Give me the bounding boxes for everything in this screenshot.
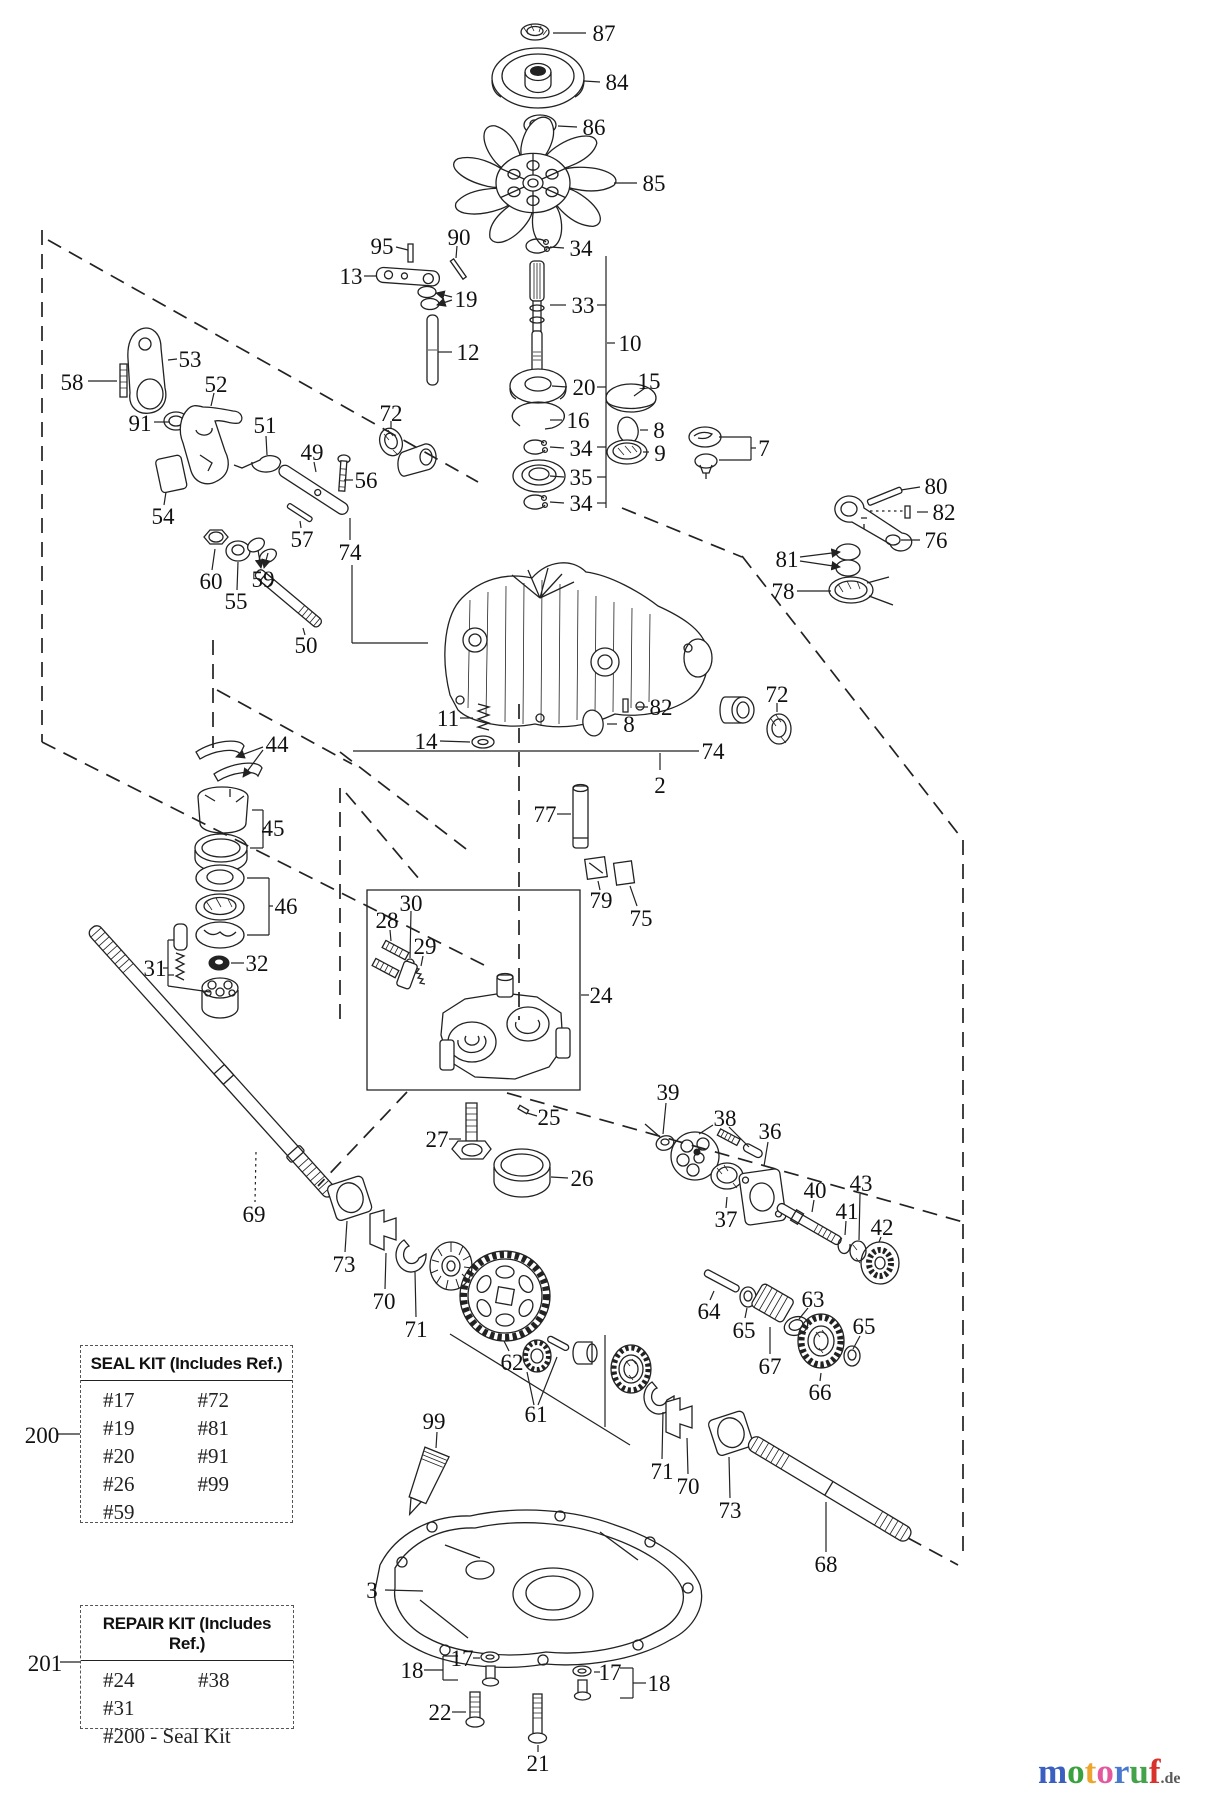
cylinder-block-left	[202, 978, 238, 1018]
callout-90: 90	[448, 225, 471, 250]
callout-81: 81	[776, 547, 799, 572]
callout-84: 84	[606, 70, 630, 95]
callout-49: 49	[301, 440, 324, 465]
callout-18: 18	[648, 1671, 671, 1696]
repair-kit-ref: #31	[103, 1697, 198, 1720]
callout-62: 62	[501, 1350, 524, 1375]
exploded-diagram-canvas: 8784868590951334193310122015168349353478…	[0, 0, 1208, 1800]
callout-73: 73	[719, 1498, 742, 1523]
callout-38: 38	[714, 1106, 737, 1131]
callout-8: 8	[623, 712, 635, 737]
leader-arrow	[800, 561, 840, 567]
leader-line	[662, 1412, 663, 1459]
leader-line	[237, 562, 238, 590]
glue-tube-99-drawing	[399, 1447, 449, 1520]
callout-72: 72	[766, 682, 789, 707]
spring-31	[176, 953, 184, 980]
snap-ring-16	[512, 402, 564, 429]
callout-95: 95	[371, 234, 394, 259]
callout-43: 43	[850, 1171, 873, 1196]
callout-30: 30	[400, 891, 423, 916]
leader-line	[551, 1177, 568, 1178]
bypass-arm-group-drawing	[829, 487, 912, 605]
callout-61: 61	[525, 1402, 548, 1427]
c-washer-71a	[396, 1240, 426, 1272]
clutch-pack-cluster-drawing	[174, 741, 262, 1018]
gear-42	[861, 1242, 899, 1284]
leader-line	[687, 1438, 688, 1474]
repair-kit-ref: #24	[103, 1669, 198, 1692]
leader-line	[550, 502, 564, 503]
leader-line	[410, 911, 411, 958]
callout-82: 82	[933, 500, 956, 525]
callout-31: 31	[144, 956, 167, 981]
callout-10: 10	[619, 331, 642, 356]
seal-kit-ref: #17	[103, 1389, 198, 1412]
callout-70: 70	[677, 1474, 700, 1499]
callout-200: 200	[25, 1423, 60, 1448]
callout-201: 201	[28, 1651, 63, 1676]
callout-78: 78	[772, 579, 795, 604]
boundary-dashed-line	[622, 508, 742, 557]
leader-line	[527, 1113, 537, 1116]
callout-59: 59	[252, 567, 275, 592]
leader-line	[584, 81, 600, 82]
input-shaft-stack-drawing	[510, 239, 566, 509]
callout-73: 73	[333, 1252, 356, 1277]
callout-91: 91	[129, 411, 152, 436]
callout-85: 85	[643, 171, 666, 196]
seal-kit-ref: #20	[103, 1445, 198, 1468]
callout-64: 64	[698, 1299, 722, 1324]
pump-box-drawing	[367, 890, 580, 1114]
callout-76: 76	[925, 528, 948, 553]
callout-87: 87	[593, 21, 616, 46]
leader-line	[901, 487, 920, 490]
exploded-parts-diagram-page: 8784868590951334193310122015168349353478…	[0, 0, 1208, 1800]
callout-77: 77	[534, 802, 557, 827]
right-axle-hardware-drawing	[644, 1382, 914, 1544]
repair-kit-title: REPAIR KIT (Includes Ref.)	[81, 1606, 293, 1661]
logo-letter: t	[1085, 1752, 1097, 1791]
callout-17: 17	[451, 1646, 474, 1671]
control-arm-cluster-drawing	[120, 328, 350, 628]
leader-line	[630, 886, 637, 906]
logo-letter: u	[1129, 1752, 1148, 1791]
callout-65: 65	[733, 1318, 756, 1343]
leader-line	[345, 1221, 347, 1252]
spring-link-51	[234, 456, 281, 472]
callout-37: 37	[715, 1207, 738, 1232]
callout-22: 22	[429, 1700, 452, 1725]
callout-45: 45	[262, 816, 285, 841]
callout-17: 17	[599, 1660, 622, 1685]
left-bearing-bushing-drawing	[376, 425, 436, 476]
callout-57: 57	[291, 527, 314, 552]
callout-35: 35	[570, 465, 593, 490]
callout-50: 50	[295, 633, 318, 658]
callout-9: 9	[654, 441, 666, 466]
boundary-dashed-line	[908, 1538, 958, 1565]
leader-line	[663, 1103, 666, 1134]
logo-letter: o	[1096, 1752, 1114, 1791]
callout-58: 58	[61, 370, 84, 395]
leader-line	[859, 1194, 860, 1240]
seal-kit-ref: #59	[103, 1501, 198, 1524]
seal-kit-ref: #19	[103, 1417, 198, 1440]
seal-kit-title: SEAL KIT (Includes Ref.)	[81, 1346, 292, 1381]
leader-line	[436, 1432, 437, 1448]
logo-letter: r	[1114, 1752, 1130, 1791]
callout-66: 66	[809, 1380, 832, 1405]
pulley-84	[492, 48, 584, 108]
bevel-gear-small	[430, 1242, 472, 1290]
callout-72: 72	[380, 401, 403, 426]
leader-line	[729, 1457, 730, 1498]
callout-71: 71	[405, 1317, 428, 1342]
callout-26: 26	[571, 1166, 594, 1191]
callout-32: 32	[246, 951, 269, 976]
callout-14: 14	[415, 729, 439, 754]
bracket-line	[527, 1372, 534, 1405]
boundary-dashed-line	[346, 793, 420, 880]
brake-lever-cluster-drawing	[376, 244, 466, 385]
callout-12: 12	[457, 340, 480, 365]
callout-29: 29	[414, 934, 437, 959]
motor-block-cluster-drawing	[645, 1124, 899, 1284]
leader-line	[558, 126, 577, 127]
callout-52: 52	[205, 372, 228, 397]
callout-42: 42	[871, 1215, 894, 1240]
callout-74: 74	[702, 739, 726, 764]
leader-line	[415, 1272, 416, 1317]
pinion-gear-61	[523, 1340, 551, 1372]
callout-21: 21	[527, 1751, 550, 1776]
seal-kit-ref: #81	[198, 1417, 293, 1440]
callout-16: 16	[567, 408, 590, 433]
logo-suffix: .de	[1160, 1770, 1180, 1787]
side-gear-with-bearing	[611, 1345, 651, 1393]
callout-34: 34	[570, 491, 594, 516]
callout-18: 18	[401, 1658, 424, 1683]
callout-36: 36	[759, 1119, 782, 1144]
callout-11: 11	[437, 706, 459, 731]
callout-53: 53	[179, 347, 202, 372]
callout-55: 55	[225, 589, 248, 614]
pump-body	[440, 974, 570, 1080]
callout-20: 20	[573, 375, 596, 400]
logo-letter: f	[1149, 1752, 1161, 1791]
leader-line	[396, 247, 408, 250]
callout-19: 19	[455, 287, 478, 312]
bolt27-ring26-drawing	[452, 1103, 550, 1197]
logo-letter: m	[1038, 1752, 1067, 1791]
callout-40: 40	[804, 1178, 827, 1203]
boundary-dashed-line	[340, 752, 470, 852]
callout-13: 13	[340, 264, 363, 289]
callout-99: 99	[423, 1409, 446, 1434]
callout-74: 74	[339, 540, 363, 565]
callout-69: 69	[243, 1202, 266, 1227]
callout-71: 71	[651, 1459, 674, 1484]
callout-28: 28	[376, 908, 399, 933]
leader-line	[212, 549, 215, 570]
callout-60: 60	[200, 569, 223, 594]
leader-line	[266, 436, 267, 455]
callout-80: 80	[925, 474, 948, 499]
seal-kit-ref: #99	[198, 1473, 293, 1496]
callout-82: 82	[650, 695, 673, 720]
callout-65: 65	[853, 1314, 876, 1339]
idler-gear-cluster-drawing	[703, 1269, 860, 1368]
leader-line	[385, 1253, 386, 1289]
leader-line	[168, 359, 177, 360]
callout-27: 27	[426, 1127, 449, 1152]
nut-60	[204, 530, 228, 544]
callout-63: 63	[802, 1287, 825, 1312]
leader-arrow	[436, 293, 452, 297]
callout-68: 68	[815, 1552, 838, 1577]
gear-66	[798, 1314, 844, 1368]
left-axle-hardware-drawing	[326, 1175, 651, 1393]
boundary-dashed-line	[42, 742, 486, 966]
leader-line	[764, 1142, 768, 1166]
bottom-pan-drawing	[375, 1510, 702, 1667]
callout-2: 2	[654, 773, 666, 798]
callout-33: 33	[572, 293, 595, 318]
callout-8: 8	[653, 418, 665, 443]
leader-line	[440, 741, 470, 742]
callout-46: 46	[275, 894, 298, 919]
callout-51: 51	[254, 413, 277, 438]
retaining-ring-87	[521, 24, 549, 40]
differential-gear-62	[460, 1251, 550, 1341]
seal-kit-table: SEAL KIT (Includes Ref.) #17 #72 #19 #81…	[80, 1345, 293, 1523]
callout-70: 70	[373, 1289, 396, 1314]
seal-kit-ref: #91	[198, 1445, 293, 1468]
leader-line	[745, 1308, 747, 1318]
callout-75: 75	[630, 906, 653, 931]
boundary-dashed-line	[318, 1092, 407, 1186]
callout-67: 67	[759, 1354, 782, 1379]
callout-56: 56	[355, 468, 378, 493]
seal-kit-ref: #26	[103, 1473, 198, 1496]
tube-and-plugs-drawing	[573, 785, 634, 886]
callout-25: 25	[538, 1105, 561, 1130]
bracket-line	[699, 1125, 713, 1134]
repair-kit-ref: #38	[198, 1669, 293, 1692]
pin-sleeve	[396, 960, 418, 989]
callout-41: 41	[836, 1199, 859, 1224]
repair-kit-ref: #200 - Seal Kit	[103, 1725, 293, 1748]
callout-79: 79	[590, 888, 613, 913]
callout-39: 39	[657, 1080, 680, 1105]
seal-kit-ref: #72	[198, 1389, 293, 1412]
callout-7: 7	[758, 436, 770, 461]
callout-24: 24	[590, 983, 614, 1008]
repair-kit-table: REPAIR KIT (Includes Ref.) #24 #38 #31 #…	[80, 1605, 294, 1729]
leader-line	[255, 1152, 256, 1202]
callout-54: 54	[152, 504, 176, 529]
seal-ring-78	[829, 577, 893, 605]
callout-86: 86	[583, 115, 606, 140]
leader-line	[550, 447, 564, 448]
callout-34: 34	[570, 436, 594, 461]
callout-3: 3	[366, 1578, 378, 1603]
shift-fork-70a	[370, 1210, 396, 1250]
motoruf-logo[interactable]: motoruf.de	[1038, 1752, 1208, 1796]
callout-15: 15	[638, 369, 661, 394]
logo-letter: o	[1067, 1752, 1085, 1791]
leader-arrow	[800, 552, 840, 557]
callout-44: 44	[266, 732, 290, 757]
callout-34: 34	[570, 236, 594, 261]
